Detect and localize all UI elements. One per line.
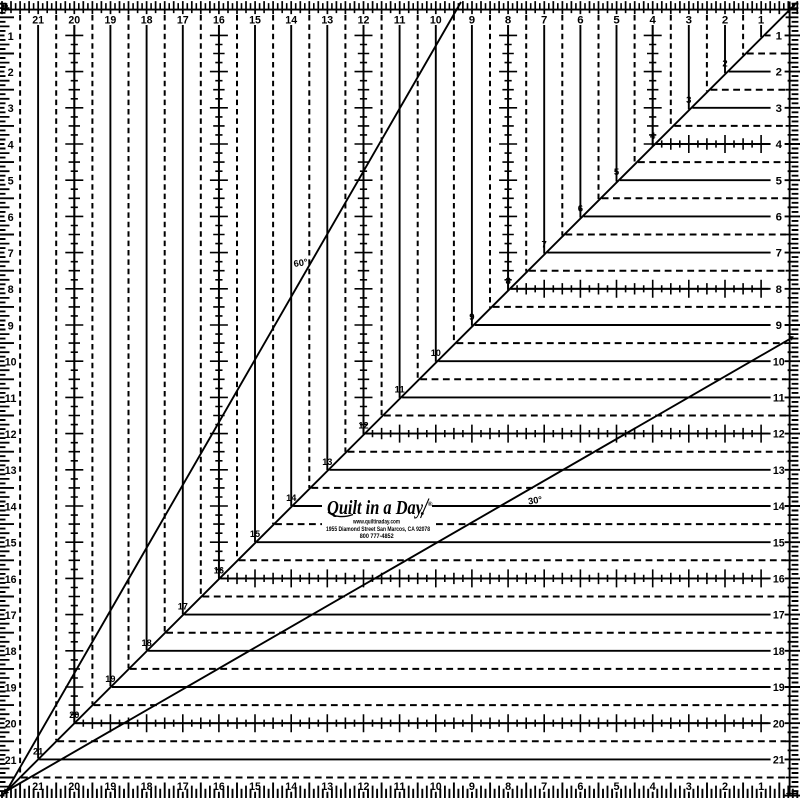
svg-text:20: 20: [68, 15, 80, 27]
svg-text:8: 8: [505, 15, 511, 27]
svg-text:www.quiltinaday.com: www.quiltinaday.com: [352, 518, 400, 525]
svg-text:2: 2: [722, 59, 727, 70]
svg-text:17: 17: [177, 781, 189, 793]
svg-text:9: 9: [469, 15, 475, 27]
svg-text:Quilt in a Day: Quilt in a Day: [327, 498, 423, 519]
svg-text:19: 19: [5, 682, 17, 694]
svg-text:12: 12: [358, 781, 370, 793]
svg-text:5: 5: [776, 175, 783, 187]
svg-text:14: 14: [5, 501, 17, 513]
svg-text:20: 20: [5, 719, 17, 731]
svg-text:10: 10: [773, 356, 785, 368]
svg-text:18: 18: [141, 15, 153, 27]
svg-text:7: 7: [8, 248, 14, 260]
svg-text:4: 4: [650, 781, 656, 793]
svg-text:16: 16: [773, 574, 785, 586]
svg-text:19: 19: [105, 674, 115, 685]
svg-text:8: 8: [8, 284, 14, 296]
svg-text:3: 3: [686, 781, 692, 793]
svg-text:3: 3: [776, 103, 782, 115]
svg-text:15: 15: [773, 537, 785, 549]
svg-text:11: 11: [773, 393, 785, 405]
svg-text:10: 10: [430, 15, 442, 27]
svg-text:17: 17: [178, 602, 188, 613]
svg-text:16: 16: [213, 15, 225, 27]
svg-text:9: 9: [776, 320, 782, 332]
svg-text:9: 9: [8, 320, 14, 332]
svg-text:11: 11: [394, 781, 406, 793]
svg-text:8: 8: [505, 276, 510, 287]
svg-text:6: 6: [8, 212, 14, 224]
svg-text:6: 6: [578, 203, 583, 214]
svg-text:9: 9: [469, 312, 474, 323]
svg-text:14: 14: [285, 781, 297, 793]
svg-text:5: 5: [613, 781, 619, 793]
svg-text:16: 16: [214, 565, 224, 576]
svg-text:3: 3: [8, 103, 14, 115]
svg-text:6: 6: [577, 781, 583, 793]
svg-text:6: 6: [776, 212, 782, 224]
svg-text:11: 11: [395, 384, 406, 395]
svg-text:8: 8: [776, 284, 782, 296]
svg-text:17: 17: [5, 610, 17, 622]
svg-text:20: 20: [68, 781, 80, 793]
svg-text:2: 2: [8, 67, 14, 79]
svg-text:5: 5: [613, 15, 620, 27]
svg-text:3: 3: [686, 95, 691, 106]
svg-text:19: 19: [105, 15, 117, 27]
svg-text:21: 21: [5, 755, 17, 767]
svg-text:14: 14: [773, 501, 785, 513]
svg-text:13: 13: [773, 465, 785, 477]
svg-text:7: 7: [541, 15, 547, 27]
svg-text:15: 15: [5, 538, 17, 550]
svg-text:18: 18: [773, 646, 785, 658]
svg-text:20: 20: [773, 718, 785, 730]
svg-text:19: 19: [773, 682, 785, 694]
svg-text:9: 9: [469, 781, 475, 793]
svg-text:5: 5: [614, 167, 620, 178]
svg-text:12: 12: [358, 421, 368, 432]
svg-text:20: 20: [69, 710, 79, 721]
svg-text:3: 3: [686, 15, 692, 27]
svg-text:800 777-4852: 800 777-4852: [360, 533, 394, 540]
svg-text:8: 8: [505, 781, 511, 793]
svg-text:12: 12: [5, 429, 17, 441]
svg-text:4: 4: [650, 15, 657, 27]
svg-text:21: 21: [33, 746, 44, 757]
svg-text:7: 7: [541, 781, 547, 793]
svg-text:2: 2: [722, 781, 728, 793]
svg-text:15: 15: [250, 529, 261, 540]
svg-text:21: 21: [32, 15, 44, 27]
svg-text:1: 1: [758, 781, 764, 793]
svg-text:6: 6: [577, 15, 583, 27]
svg-text:18: 18: [141, 781, 153, 793]
svg-text:4: 4: [650, 131, 656, 142]
svg-text:®: ®: [428, 501, 433, 508]
svg-text:1: 1: [8, 31, 14, 43]
svg-text:13: 13: [321, 15, 333, 27]
svg-text:4: 4: [8, 139, 14, 151]
svg-text:17: 17: [177, 15, 189, 27]
svg-text:7: 7: [542, 240, 547, 251]
svg-text:2: 2: [722, 15, 728, 27]
svg-text:15: 15: [249, 781, 261, 793]
svg-text:12: 12: [773, 429, 785, 441]
svg-text:10: 10: [430, 781, 442, 793]
svg-text:21: 21: [773, 755, 785, 767]
svg-text:5: 5: [8, 176, 14, 188]
svg-text:13: 13: [322, 457, 332, 468]
svg-text:4: 4: [776, 139, 783, 151]
svg-text:21: 21: [32, 781, 44, 793]
svg-text:2: 2: [776, 67, 782, 79]
svg-text:10: 10: [5, 357, 17, 369]
svg-text:16: 16: [213, 781, 225, 793]
svg-text:15: 15: [249, 15, 261, 27]
svg-text:17: 17: [773, 610, 785, 622]
svg-text:1: 1: [776, 31, 783, 43]
svg-text:1: 1: [758, 15, 765, 27]
svg-text:19: 19: [105, 781, 117, 793]
svg-text:7: 7: [776, 248, 782, 260]
svg-text:1955 Diamond Street San Marcos: 1955 Diamond Street San Marcos, CA 92078: [326, 526, 430, 533]
svg-text:11: 11: [5, 393, 17, 405]
svg-text:18: 18: [142, 638, 152, 649]
svg-text:11: 11: [394, 15, 406, 27]
svg-text:10: 10: [431, 348, 441, 359]
svg-text:16: 16: [5, 574, 17, 586]
svg-text:18: 18: [5, 646, 17, 658]
svg-text:13: 13: [5, 465, 17, 477]
svg-text:12: 12: [358, 15, 370, 27]
svg-text:14: 14: [285, 15, 297, 27]
svg-text:13: 13: [321, 781, 333, 793]
svg-text:14: 14: [286, 493, 297, 504]
